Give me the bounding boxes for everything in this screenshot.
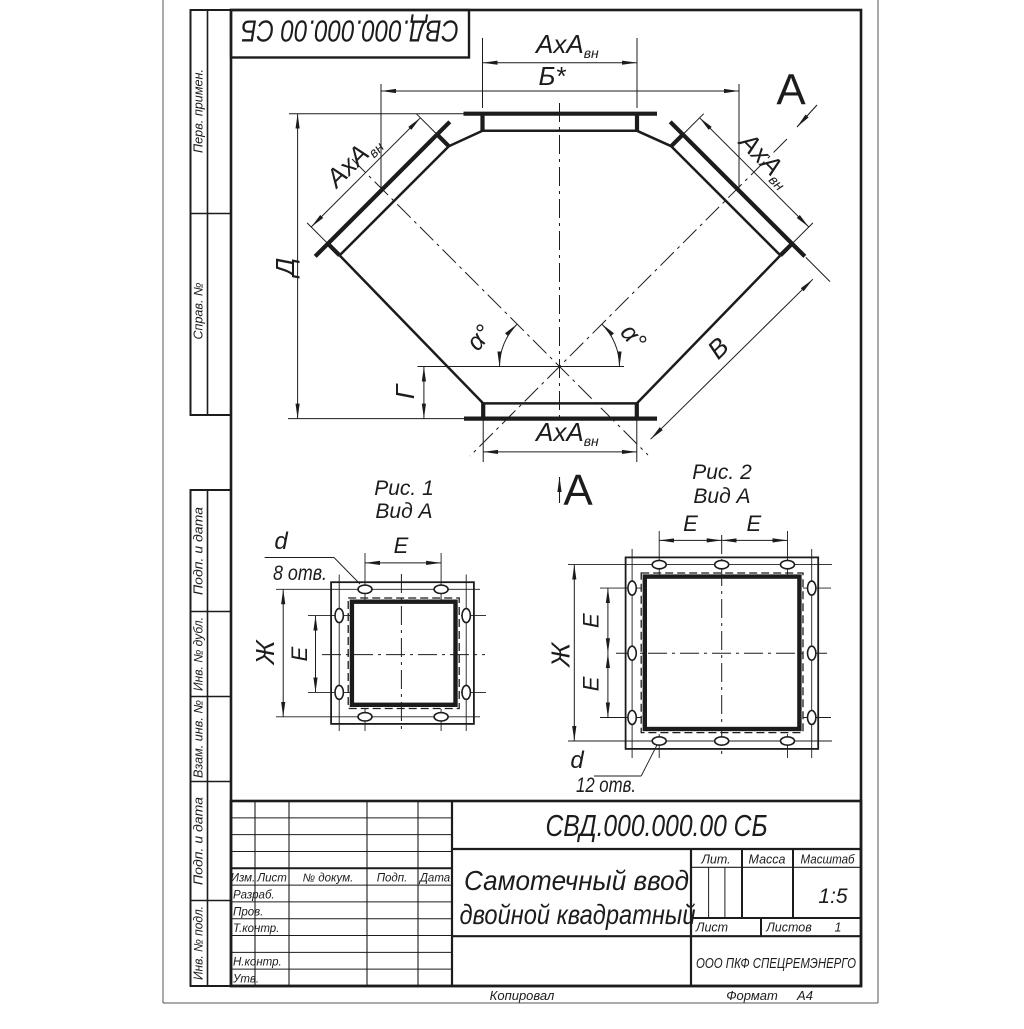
svg-text:Ж: Ж — [545, 641, 575, 669]
svg-text:Подп. и дата: Подп. и дата — [192, 507, 206, 595]
svg-text:двойной квадратный: двойной квадратный — [460, 899, 696, 930]
svg-text:Е: Е — [747, 511, 762, 536]
svg-text:А: А — [563, 466, 593, 515]
svg-text:Копировал: Копировал — [490, 988, 555, 1003]
svg-text:Формат: Формат — [726, 988, 778, 1003]
svg-text:Лист: Лист — [256, 873, 287, 885]
svg-text:Взам. инв. №: Взам. инв. № — [192, 700, 206, 778]
svg-text:Самотечный ввод: Самотечный ввод — [464, 865, 689, 896]
svg-text:Ж: Ж — [250, 639, 280, 667]
svg-text:d: d — [570, 747, 584, 774]
svg-text:Е: Е — [394, 533, 409, 558]
svg-text:Б*: Б* — [538, 61, 566, 91]
svg-text:Утв.: Утв. — [232, 974, 259, 986]
svg-text:Перв. примен.: Перв. примен. — [192, 69, 206, 153]
svg-text:ООО ПКФ СПЕЦРЕМЭНЕРГО: ООО ПКФ СПЕЦРЕМЭНЕРГО — [696, 956, 856, 972]
svg-text:Подп. и дата: Подп. и дата — [192, 797, 206, 885]
svg-text:Разраб.: Разраб. — [233, 890, 275, 902]
svg-text:Д: Д — [270, 258, 300, 279]
svg-text:Г: Г — [390, 383, 420, 399]
svg-text:Е: Е — [287, 646, 312, 661]
svg-text:СВД.000.000.00 СБ: СВД.000.000.00 СБ — [546, 808, 768, 843]
svg-text:СВД.000.000.00 СБ: СВД.000.000.00 СБ — [241, 14, 459, 49]
svg-text:Лит.: Лит. — [700, 853, 730, 867]
svg-text:d: d — [274, 528, 288, 555]
svg-text:А4: А4 — [796, 988, 813, 1003]
svg-text:Листов: Листов — [765, 921, 812, 935]
svg-text:Подп.: Подп. — [377, 873, 408, 885]
svg-text:Вид А: Вид А — [375, 500, 432, 523]
svg-text:Рис. 1: Рис. 1 — [374, 477, 434, 500]
svg-text:Е: Е — [683, 511, 698, 536]
svg-text:Изм.: Изм. — [231, 873, 256, 885]
svg-text:12 отв.: 12 отв. — [576, 774, 636, 797]
svg-text:1:5: 1:5 — [818, 885, 848, 908]
svg-text:Е: Е — [579, 613, 604, 628]
svg-text:Н.контр.: Н.контр. — [233, 957, 282, 969]
svg-text:Лист: Лист — [695, 921, 728, 935]
svg-text:Инв. № дубл.: Инв. № дубл. — [192, 617, 206, 691]
svg-text:Рис. 2: Рис. 2 — [692, 461, 752, 484]
svg-text:№ докум.: № докум. — [303, 873, 354, 885]
svg-text:Справ. №: Справ. № — [192, 282, 206, 339]
svg-text:Вид А: Вид А — [693, 485, 750, 508]
svg-text:Т.контр.: Т.контр. — [233, 923, 279, 935]
svg-text:Масса: Масса — [749, 853, 786, 867]
svg-text:Дата: Дата — [418, 873, 450, 885]
svg-text:1: 1 — [835, 921, 842, 935]
svg-text:Е: Е — [579, 676, 604, 691]
svg-text:А: А — [776, 66, 806, 115]
svg-text:Пров.: Пров. — [233, 906, 263, 918]
svg-text:Масштаб: Масштаб — [801, 853, 856, 867]
svg-text:Инв. № подл.: Инв. № подл. — [192, 906, 206, 980]
svg-text:8 отв.: 8 отв. — [273, 562, 327, 585]
